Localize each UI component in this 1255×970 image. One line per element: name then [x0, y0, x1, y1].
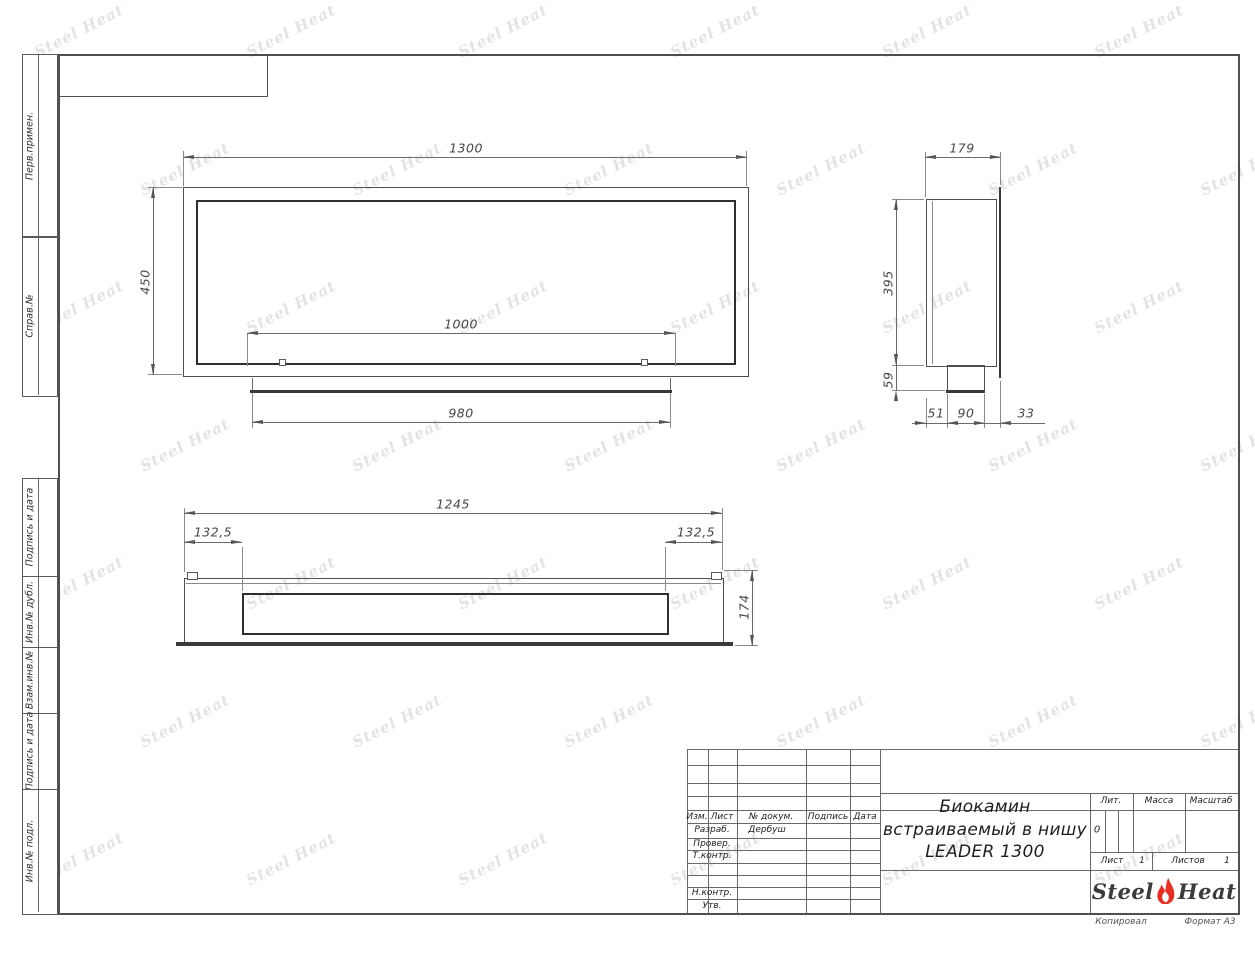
extension-line — [892, 390, 945, 391]
margin-label: Подпись и дата — [25, 712, 36, 791]
title-block-line — [850, 749, 851, 913]
watermark-text: Steel Heat — [455, 1, 551, 62]
dim-arrow — [894, 199, 898, 210]
front-view-clip-left — [279, 359, 286, 366]
sheets-label: Листов — [1171, 856, 1205, 866]
dim-text-side-depth: 179 — [949, 141, 974, 156]
dim-arrow — [1000, 421, 1011, 425]
extension-line — [670, 393, 671, 428]
title-block-line — [880, 870, 1238, 871]
dim-arrow — [252, 420, 263, 424]
staff-name: Дербуш — [748, 825, 785, 835]
steelheat-logo: Steel Heat — [1092, 878, 1237, 904]
dim-arrow — [750, 635, 754, 646]
staff-role: Н.контр. — [692, 888, 732, 898]
staff-role: Провер. — [693, 839, 730, 849]
margin-label: Подпись и дата — [25, 488, 36, 567]
side-view-burner-bottom — [946, 390, 985, 393]
dim-arrow — [750, 570, 754, 581]
title-block-line — [880, 749, 881, 913]
side-view-inner-wall — [932, 201, 933, 364]
title-block-line — [687, 863, 880, 864]
flame-icon — [1156, 878, 1176, 904]
title-block-line — [1105, 810, 1106, 852]
doc-title-line-3: LEADER 1300 — [925, 842, 1044, 862]
dim-text-burner-depth: 90 — [958, 406, 975, 421]
extension-line — [675, 333, 676, 366]
extension-line — [735, 645, 758, 646]
dim-arrow — [711, 511, 722, 515]
col-header-sign: Подпись — [808, 812, 848, 822]
doc-title-line-2: встраиваемый в нишу — [883, 820, 1087, 840]
title-block-line — [687, 749, 688, 913]
extension-line — [722, 508, 723, 570]
dim-text-side-height: 395 — [881, 270, 896, 295]
extension-line — [247, 333, 248, 366]
dim-text-top-depth: 174 — [737, 594, 752, 619]
margin-label: Справ.№ — [25, 294, 36, 337]
dim-arrow — [659, 420, 670, 424]
side-view-burner-box — [947, 365, 985, 392]
dim-line-top-width — [184, 513, 722, 514]
front-view-tray-left — [252, 378, 253, 390]
dim-arrow — [151, 187, 155, 198]
title-block-line — [1090, 852, 1238, 853]
doc-title-line-1: Биокамин — [939, 797, 1030, 817]
col-header-date: Дата — [853, 812, 876, 822]
margin-divider — [38, 577, 39, 647]
margin-label: Перв.примен. — [25, 112, 36, 180]
dim-line-tray-width — [252, 422, 670, 423]
dim-line-front-width — [183, 157, 747, 158]
title-block-line — [687, 796, 880, 797]
title-block-line — [687, 823, 880, 824]
dim-arrow — [184, 540, 195, 544]
margin-divider — [38, 648, 39, 713]
format-label: Формат А3 — [1184, 917, 1235, 927]
sheet-label: Лист — [1101, 856, 1124, 866]
title-block-line — [687, 749, 1238, 750]
mass-header: Масса — [1145, 796, 1174, 806]
dim-text-opening-width: 1000 — [444, 317, 478, 332]
dim-arrow — [925, 155, 936, 159]
margin-divider — [38, 714, 39, 789]
front-view-tray-bottom — [250, 390, 672, 393]
dim-text-front-height: 450 — [138, 269, 153, 294]
margin-label: Инв.№ дубл. — [25, 581, 36, 643]
drawing-frame — [58, 54, 1240, 915]
dim-arrow — [247, 331, 258, 335]
col-header-doc: № докум. — [749, 812, 793, 822]
dim-line-side-bottom — [896, 365, 897, 390]
front-view-tray-right — [670, 378, 671, 390]
title-block-line — [1152, 852, 1153, 870]
dim-text-offset-front: 51 — [928, 406, 945, 421]
title-block-line — [687, 783, 880, 784]
copied-label: Копировал — [1095, 917, 1146, 927]
top-view-inner-top-line — [186, 583, 721, 584]
dim-text-front-width: 1300 — [449, 141, 483, 156]
lit-value: 0 — [1094, 825, 1100, 836]
margin-label: Инв.№ подл. — [25, 820, 36, 883]
title-block-line — [737, 749, 738, 913]
title-block-line — [687, 765, 880, 766]
dim-arrow — [894, 390, 898, 401]
extension-line — [665, 547, 666, 591]
dim-arrow — [736, 155, 747, 159]
watermark-text: Steel Heat — [879, 1, 975, 62]
title-block-line — [806, 749, 807, 913]
dim-text-tray-width: 980 — [448, 406, 473, 421]
dim-text-inset-left: 132,5 — [194, 525, 232, 540]
top-left-stamp-box — [58, 54, 268, 97]
staff-role: Разраб. — [694, 825, 729, 835]
sheets-total: 1 — [1224, 856, 1230, 866]
dim-arrow — [711, 540, 722, 544]
front-view-clip-right — [641, 359, 648, 366]
watermark-text: Steel Heat — [667, 1, 763, 62]
title-block-line — [687, 899, 880, 900]
top-view-clip-left — [187, 572, 198, 580]
top-view-clip-right — [711, 572, 722, 580]
dim-arrow — [947, 421, 958, 425]
margin-label: Взам.инв.№ — [25, 651, 36, 709]
watermark-text: Steel Heat — [243, 1, 339, 62]
margin-divider — [38, 479, 39, 576]
title-block-line — [1118, 810, 1119, 852]
dim-arrow — [894, 354, 898, 365]
watermark-text: Steel Heat — [31, 1, 127, 62]
logo-steel-text: Steel — [1092, 879, 1154, 904]
dim-text-side-bottom: 59 — [881, 372, 896, 389]
dim-text-top-width: 1245 — [436, 497, 470, 512]
dim-arrow — [665, 540, 676, 544]
dim-text-inset-right: 132,5 — [677, 525, 715, 540]
watermark-text: Steel Heat — [1091, 1, 1187, 62]
col-header-list: Лист — [711, 812, 734, 822]
margin-divider — [38, 238, 39, 395]
dim-arrow — [915, 421, 926, 425]
title-block-line — [1185, 793, 1186, 852]
side-view-body — [926, 199, 997, 367]
dim-arrow — [183, 155, 194, 159]
dim-arrow — [184, 511, 195, 515]
dim-arrow — [664, 331, 675, 335]
extension-line — [242, 547, 243, 591]
dim-arrow — [231, 540, 242, 544]
sheet-number: 1 — [1139, 856, 1145, 866]
staff-role: Т.контр. — [692, 851, 731, 861]
dim-line-opening-width — [247, 333, 675, 334]
dim-arrow — [990, 155, 1001, 159]
col-header-izm: Изм. — [686, 812, 707, 822]
dim-arrow — [974, 421, 985, 425]
top-view-flange-strip — [176, 642, 733, 646]
staff-role: Утв. — [703, 901, 722, 911]
dim-text-offset-back: 33 — [1018, 406, 1035, 421]
top-view-burner-opening — [242, 593, 669, 635]
lit-header: Лит. — [1101, 796, 1122, 806]
logo-heat-text: Heat — [1178, 879, 1237, 904]
dim-line-front-height — [153, 187, 154, 375]
title-block-line — [687, 875, 880, 876]
dim-line-side-height — [896, 199, 897, 365]
drawing-sheet: Steel HeatSteel HeatSteel HeatSteel Heat… — [0, 0, 1255, 970]
front-view-opening — [196, 200, 736, 365]
side-view-flange — [999, 187, 1001, 378]
title-block-line — [1133, 793, 1134, 852]
scale-header: Масштаб — [1190, 796, 1233, 806]
dim-arrow — [151, 364, 155, 375]
margin-divider — [38, 55, 39, 236]
margin-divider — [38, 790, 39, 912]
